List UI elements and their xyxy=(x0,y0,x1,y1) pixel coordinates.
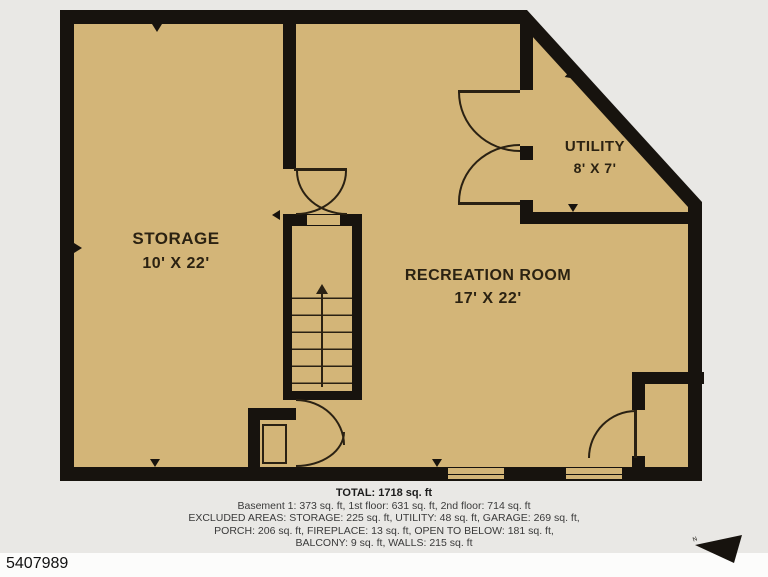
excluded-areas-text-1: EXCLUDED AREAS: STORAGE: 225 sq. ft, UTI… xyxy=(0,512,768,525)
room-label-utility: UTILITY 8' X 7' xyxy=(545,136,645,178)
wall-storage-divider xyxy=(283,24,296,169)
wall-hall-jog-vertical xyxy=(248,408,260,467)
excluded-areas-text-3: BALCONY: 9 sq. ft, WALLS: 215 sq. ft xyxy=(0,537,768,550)
wall-stair-right xyxy=(352,214,362,400)
window-glass-line xyxy=(566,474,622,476)
room-label-recreation: RECREATION ROOM 17' X 22' xyxy=(388,264,588,310)
wall-utility-left-lower xyxy=(520,200,533,212)
dimension-tick-top-wall-icon xyxy=(152,24,162,32)
room-dimensions: 17' X 22' xyxy=(388,287,588,310)
wall-utility-left-middle xyxy=(520,146,533,160)
north-arrow-icon: N xyxy=(692,532,746,571)
room-name: STORAGE xyxy=(96,227,256,252)
room-dimensions: 8' X 7' xyxy=(545,158,645,178)
north-label: N xyxy=(692,536,698,543)
excluded-areas-text-2: PORCH: 206 sq. ft, FIREPLACE: 13 sq. ft,… xyxy=(0,525,768,538)
floorplan-page: STORAGE 10' X 22' RECREATION ROOM 17' X … xyxy=(0,0,768,577)
wall-utility-bottom xyxy=(520,212,690,224)
floor-areas-text: Basement 1: 373 sq. ft, 1st floor: 631 s… xyxy=(0,500,768,513)
window-bottom-right xyxy=(565,467,623,480)
window-bottom-left xyxy=(447,467,505,480)
room-dimensions: 10' X 22' xyxy=(96,252,256,275)
stair-doorway-threshold xyxy=(307,214,340,226)
wall-stair-left xyxy=(283,214,292,400)
stair-arrow-head-icon xyxy=(316,284,328,294)
room-label-storage: STORAGE 10' X 22' xyxy=(96,227,256,275)
utility-door-lower-leaf xyxy=(458,202,520,205)
dimension-tick-bottom-wall-left-icon xyxy=(150,459,160,467)
stair-direction-arrow xyxy=(321,293,323,387)
wall-stair-bottom xyxy=(283,391,362,400)
listing-id: 5407989 xyxy=(6,555,68,573)
wall-alcove-left-lower xyxy=(632,456,645,481)
room-name: RECREATION ROOM xyxy=(388,264,588,287)
dimension-tick-bottom-wall-right-icon xyxy=(432,459,442,467)
wall-utility-left-upper xyxy=(520,24,533,90)
dimension-tick-stair-icon xyxy=(272,210,280,220)
total-area-text: TOTAL: 1718 sq. ft xyxy=(0,487,768,500)
listing-id-bar: 5407989 xyxy=(0,553,768,577)
dimension-tick-utility-bottom-icon xyxy=(568,204,578,212)
wall-alcove-left-upper xyxy=(632,372,645,410)
room-name: UTILITY xyxy=(545,136,645,158)
dimension-tick-left-wall-icon xyxy=(74,243,82,253)
window-glass-line xyxy=(448,474,504,476)
hall-door-slab xyxy=(262,424,287,464)
